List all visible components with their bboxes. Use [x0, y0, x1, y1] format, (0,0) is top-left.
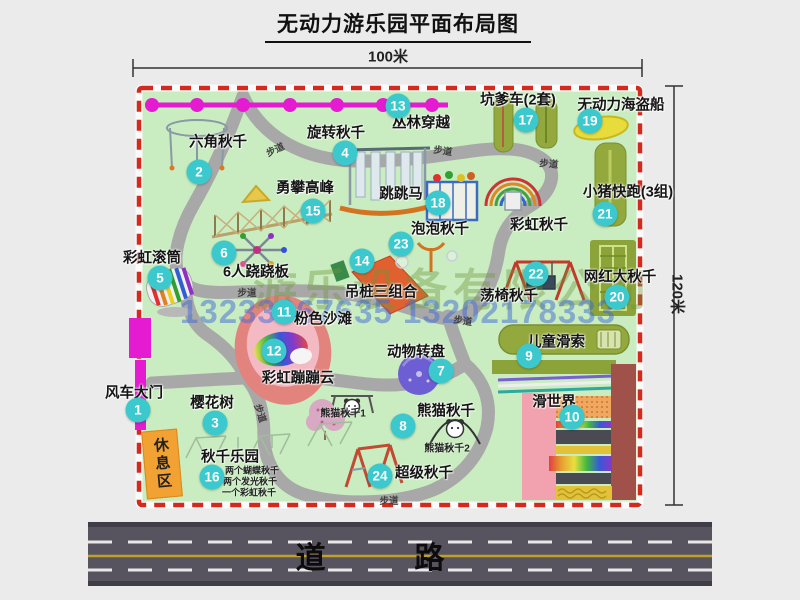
note-label-2: 熊猫秋千2: [424, 440, 470, 455]
attraction-label-20: 网红大秋千: [584, 266, 657, 287]
attraction-label-12: 彩虹蹦蹦云: [262, 367, 335, 388]
attraction-badge-22: 22: [524, 262, 549, 287]
attraction-badge-5: 5: [148, 266, 173, 291]
attraction-badge-2: 2: [187, 160, 212, 185]
labels-layer: 风车大门六角秋千樱花树旋转秋千彩虹滚筒6人跷跷板动物转盘熊猫秋千儿童滑索滑世界粉…: [0, 0, 800, 600]
attraction-badge-20: 20: [605, 285, 630, 310]
attraction-label-2: 六角秋千: [189, 131, 247, 152]
attraction-badge-12: 12: [262, 339, 287, 364]
attraction-badge-24: 24: [368, 464, 393, 489]
attraction-label-24: 超级秋千: [395, 462, 453, 483]
attraction-label-17: 坑爹车(2套): [480, 89, 556, 110]
attraction-label-3: 樱花树: [190, 392, 234, 413]
screenshot-root: 无动力游乐园平面布局图: [0, 0, 800, 600]
attraction-label-8: 熊猫秋千: [417, 400, 475, 421]
attraction-badge-18: 18: [426, 191, 451, 216]
attraction-label-23: 泡泡秋千: [411, 218, 469, 239]
attraction-badge-13: 13: [386, 94, 411, 119]
walkway-label-5: 步道: [251, 402, 270, 424]
attraction-badge-9: 9: [517, 344, 542, 369]
attraction-badge-1: 1: [126, 398, 151, 423]
attraction-badge-17: 17: [514, 108, 539, 133]
attraction-badge-11: 11: [272, 300, 297, 325]
attraction-label-5: 彩虹滚筒: [123, 247, 181, 268]
attraction-label-6: 6人跷跷板: [223, 261, 289, 282]
walkway-label-3: 步道: [237, 285, 256, 299]
attraction-badge-3: 3: [203, 411, 228, 436]
attraction-badge-6: 6: [212, 241, 237, 266]
walkway-label-1: 步道: [433, 142, 454, 159]
note-label-1: 熊猫秋千1: [320, 405, 366, 420]
walkway-label-0: 步道: [263, 139, 286, 160]
attraction-badge-15: 15: [301, 199, 326, 224]
attraction-badge-8: 8: [391, 414, 416, 439]
attraction-badge-19: 19: [578, 109, 603, 134]
attraction-label-14: 吊桩三组合: [345, 281, 418, 302]
walkway-label-4: 步道: [453, 312, 474, 329]
attraction-label-4: 旋转秋千: [307, 122, 365, 143]
attraction-badge-23: 23: [389, 232, 414, 257]
attraction-badge-7: 7: [429, 359, 454, 384]
note-label-0: 彩虹秋千: [510, 214, 568, 235]
note-label-5: 一个彩虹秋千: [222, 486, 276, 499]
road-label: 道 路: [296, 533, 469, 577]
attraction-label-18: 跳跳马: [379, 183, 423, 204]
attraction-label-21: 小猪快跑(3组): [583, 181, 673, 202]
attraction-badge-14: 14: [350, 249, 375, 274]
attraction-badge-4: 4: [333, 141, 358, 166]
walkway-label-2: 步道: [539, 155, 559, 171]
attraction-badge-16: 16: [200, 465, 225, 490]
attraction-label-22: 荡椅秋千: [480, 285, 538, 306]
attraction-badge-21: 21: [593, 202, 618, 227]
attraction-label-15: 勇攀高峰: [276, 177, 334, 198]
attraction-label-11: 粉色沙滩: [294, 308, 352, 329]
attraction-badge-10: 10: [560, 405, 585, 430]
walkway-label-6: 步道: [379, 493, 398, 507]
